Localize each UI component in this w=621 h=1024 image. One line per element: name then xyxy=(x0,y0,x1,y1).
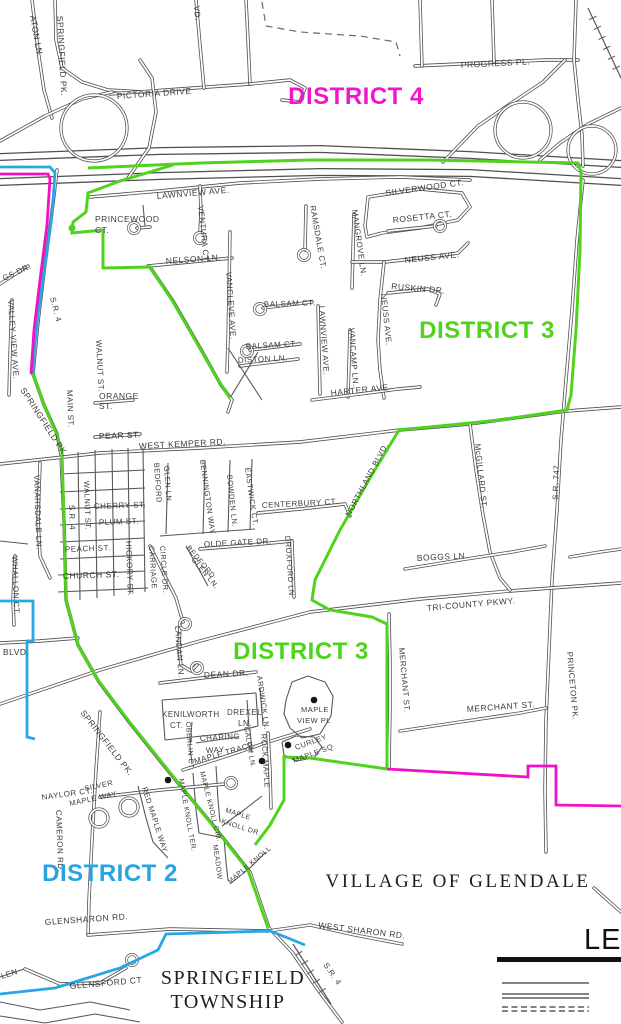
street-label: CT. xyxy=(170,721,184,730)
point-marker xyxy=(285,742,292,749)
street-label: ORANGE xyxy=(99,391,139,401)
street-label: CT. xyxy=(95,225,109,235)
street-label: PRINCEWOOD xyxy=(95,214,160,224)
road-fill xyxy=(389,614,390,769)
street-label: S.R. 4 xyxy=(67,505,77,531)
legend-title: LEGEND xyxy=(584,924,621,956)
place-label: SPRINGFIELD xyxy=(161,967,305,989)
district-map: ATON LN.SPRINGFIELD PK.PICTORIA DRIVEVD.… xyxy=(0,0,621,1024)
boundary-node xyxy=(69,225,76,232)
place-label: VILLAGE OF GLENDALE xyxy=(326,871,591,892)
street-label: S.R. 747 xyxy=(551,465,561,500)
street-label: MAPLE xyxy=(301,705,329,714)
street-label: CHURCH ST. xyxy=(63,569,120,581)
street-label: DREXEL xyxy=(227,708,262,717)
street-label: MAIN ST. xyxy=(65,390,75,428)
district-label: DISTRICT 4 xyxy=(288,83,424,110)
street-label: PLUM ST. xyxy=(99,517,139,527)
street-label: VIEW PL xyxy=(297,716,331,725)
district-label: DISTRICT 3 xyxy=(419,317,555,344)
place-label: TOWNSHIP xyxy=(171,991,286,1013)
district-label: DISTRICT 2 xyxy=(42,860,178,887)
map-canvas: ATON LN.SPRINGFIELD PK.PICTORIA DRIVEVD.… xyxy=(0,0,621,1024)
street-label: PEACH ST. xyxy=(65,543,111,554)
street-label: CHERRY ST. xyxy=(94,500,147,511)
street-label: BALSAM CT. xyxy=(264,298,316,309)
point-marker xyxy=(311,697,318,704)
legend-divider xyxy=(497,957,621,962)
district-label: DISTRICT 3 xyxy=(233,638,369,665)
point-marker xyxy=(165,777,172,784)
street-label: ST. xyxy=(99,401,113,411)
road-fill xyxy=(305,206,306,250)
street-label: PEAR ST. xyxy=(99,430,141,441)
street-label: KENILWORTH xyxy=(162,710,220,719)
street-label: VD. xyxy=(192,5,202,21)
street-label: WALNUT ST. xyxy=(82,481,93,530)
street-label: BLVD. xyxy=(3,647,29,657)
